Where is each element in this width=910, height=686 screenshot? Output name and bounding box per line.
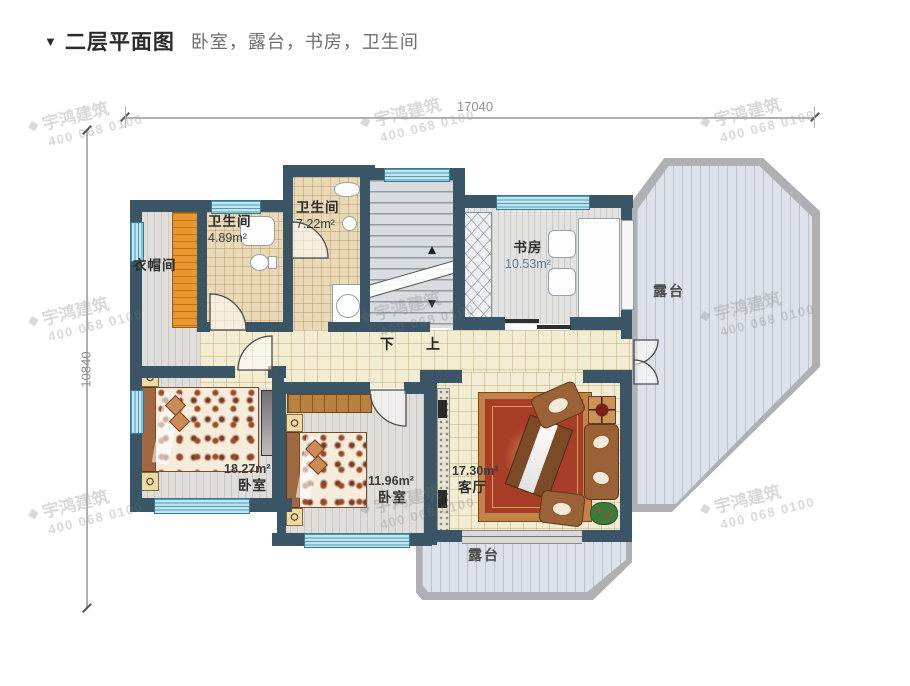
room-label-living: 17.30m² 客厅 [452,464,499,497]
window [384,168,450,182]
room-area: 4.89m² [208,231,252,247]
wall [283,165,293,332]
watermark: ◆宇鸿建筑400 068 0100 [25,87,145,153]
room-area: 17.30m² [452,464,499,480]
window [130,390,144,434]
room-label-bedroom-middle: 11.96m² 卧室 [368,474,414,507]
room-label-cloakroom: 衣帽间 [133,258,177,275]
watermark-logo-icon: ◆ [358,112,373,131]
wall [328,322,430,332]
watermark: ◆宇鸿建筑400 068 0100 [697,470,817,536]
sofa-cushion [545,394,571,417]
room-label-study: 书房 10.53m² [505,240,551,273]
page-title: ▼ 二层平面图 卧室，露台，书房，卫生间 [44,26,419,56]
toilet-tank [268,256,277,269]
plan-title: 二层平面图 [65,26,175,56]
dimension-ext [814,106,815,128]
wall [620,383,632,542]
vanity-basin [336,294,360,318]
window [130,222,144,262]
floorplan-page: { "header": { "marker": "▼", "title": "二… [0,0,910,686]
watermark-phone: 400 068 0100 [718,494,816,532]
watermark-brand: 宇鸿建筑 [39,94,111,135]
room-label-terrace-right: 露台 [653,281,685,301]
watermark-logo-icon: ◆ [26,311,41,330]
room-area: 11.96m² [368,474,414,490]
desk-chair [548,230,576,258]
desk [578,218,620,318]
watermark: ◆宇鸿建筑400 068 0100 [697,83,817,149]
room-name: 客厅 [458,480,499,497]
room-name: 卧室 [378,490,414,507]
balcony-window [621,220,634,310]
watermark-brand: 宇鸿建筑 [711,90,783,131]
title-marker-icon: ▼ [44,34,57,49]
wall [360,168,370,332]
side-table [588,396,616,424]
watermark-logo-icon: ◆ [26,116,41,135]
armchair [538,489,586,527]
study-sliding-door [505,319,539,323]
dimension-width-label: 17040 [430,99,520,114]
toilet [334,182,360,197]
dimension-height-label: 10840 [79,330,94,410]
room-label-bathroom-small: 卫生间 4.89m² [208,214,252,247]
bookshelf [464,212,492,322]
watermark-logo-icon: ◆ [26,504,41,523]
bedroom-wardrobe [287,394,372,413]
watermark-phone: 400 068 0100 [718,107,816,145]
wall [453,168,465,330]
dimension-line-top [125,117,815,119]
wall [453,317,505,330]
watermark-logo-icon: ◆ [698,112,713,131]
potted-plant [590,502,618,525]
stair-down-label: 下 [380,334,394,354]
room-label-bedroom-left: 18.27m² 卧室 [224,462,271,495]
terrace-right-floor [637,166,812,504]
stair-arrow-down-icon [428,300,436,308]
sofa-cushion [551,501,573,517]
sliding-door [462,530,582,544]
room-name: 卫生间 [208,214,252,231]
window [211,200,261,214]
wall [277,382,286,545]
wall [583,370,632,383]
window [304,533,410,548]
window [496,195,590,210]
watermark-brand: 宇鸿建筑 [39,482,111,523]
nightstand [286,414,303,432]
terrace-bottom-floor [422,540,626,592]
watermark-logo-icon: ◆ [698,499,713,518]
wall [570,317,632,330]
room-area: 10.53m² [505,257,551,273]
room-name: 卧室 [238,478,267,495]
dimension-ext [125,106,126,128]
sofa-main [584,424,619,500]
watermark: ◆宇鸿建筑400 068 0100 [357,83,477,149]
plan-subtitle: 卧室，露台，书房，卫生间 [191,28,419,54]
room-area: 18.27m² [224,462,271,478]
tv-wall-panel [438,400,447,418]
wall [197,208,207,322]
sofa-cushion [590,432,612,451]
watermark-brand: 宇鸿建筑 [711,477,783,518]
watermark: ◆宇鸿建筑400 068 0100 [25,475,145,541]
wall [420,370,462,383]
room-label-terrace-bottom: 露台 [468,545,500,565]
room-name: 卫生间 [296,200,340,217]
toilet [250,254,269,271]
desk-chair [548,268,576,296]
tv-wall-panel [438,490,447,508]
room-name: 书房 [513,240,542,257]
wall [130,366,235,378]
wall [197,322,210,332]
room-label-bathroom-large: 卫生间 7.22m² [296,200,340,233]
stairwell-floor [368,180,460,328]
study-sliding-door [537,325,571,329]
wall-basin [342,216,357,231]
stair-up-label: 上 [426,334,440,354]
stair-arrow-up-icon [428,246,436,254]
sofa-cushion [590,469,611,487]
nightstand [141,472,159,491]
wall [246,322,292,332]
window [154,498,250,514]
room-area: 7.22m² [296,217,340,233]
watermark-brand: 宇鸿建筑 [39,289,111,330]
wall [424,372,437,545]
wall [277,382,370,394]
room-name: 衣帽间 [133,258,177,275]
